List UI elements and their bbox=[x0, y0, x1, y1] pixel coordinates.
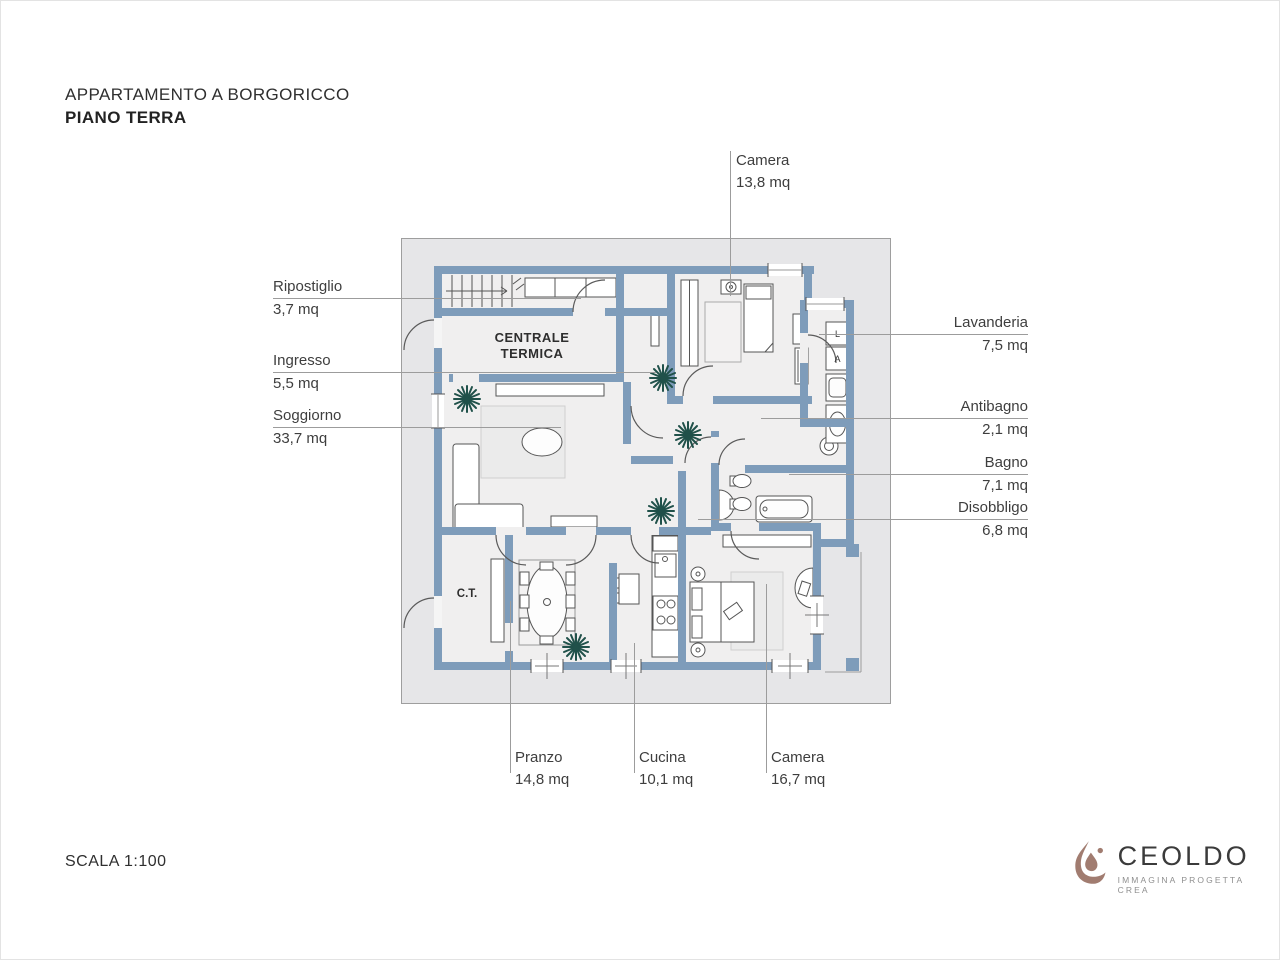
logo-tagline: IMMAGINA PROGETTA CREA bbox=[1118, 875, 1279, 895]
ct-room-label: C.T. bbox=[457, 588, 477, 600]
room-label-cucina: Cucina 10,1 mq bbox=[639, 749, 749, 788]
room-name: Bagno bbox=[789, 454, 1028, 475]
company-logo: CEOLDO IMMAGINA PROGETTA CREA bbox=[1067, 837, 1279, 895]
room-label-ingresso: Ingresso 5,5 mq bbox=[273, 352, 656, 392]
room-label-soggiorno: Soggiorno 33,7 mq bbox=[273, 407, 561, 447]
room-area: 14,8 mq bbox=[515, 769, 625, 788]
porch-pillar bbox=[846, 658, 859, 671]
room-name: Ripostiglio bbox=[273, 278, 581, 299]
room-name: Soggiorno bbox=[273, 407, 561, 428]
page-title: APPARTAMENTO A BORGORICCO bbox=[65, 85, 350, 105]
logo-brand: CEOLDO bbox=[1118, 843, 1279, 870]
room-area: 7,1 mq bbox=[789, 475, 1028, 494]
page-subtitle: PIANO TERRA bbox=[65, 108, 350, 128]
flame-logo-icon bbox=[1067, 837, 1111, 889]
room-label-bagno: Bagno 7,1 mq bbox=[789, 454, 1028, 494]
room-area: 2,1 mq bbox=[761, 419, 1028, 438]
room-area: 10,1 mq bbox=[639, 769, 749, 788]
room-name: Camera bbox=[736, 152, 856, 172]
leader-line-cucina bbox=[634, 643, 635, 773]
room-label-camera-bottom: Camera 16,7 mq bbox=[771, 749, 881, 788]
room-name: Cucina bbox=[639, 749, 749, 769]
floor-plan-page: APPARTAMENTO A BORGORICCO PIANO TERRA bbox=[0, 0, 1280, 960]
title-block: APPARTAMENTO A BORGORICCO PIANO TERRA bbox=[65, 85, 350, 128]
logo-text: CEOLDO IMMAGINA PROGETTA CREA bbox=[1118, 837, 1279, 895]
room-name: Ingresso bbox=[273, 352, 656, 373]
leader-line-camera-top bbox=[730, 151, 731, 296]
room-name: Disobbligo bbox=[698, 499, 1028, 520]
room-area: 3,7 mq bbox=[273, 299, 581, 318]
room-name: Pranzo bbox=[515, 749, 625, 769]
centrale-termica-label: CENTRALE bbox=[495, 330, 570, 345]
room-area: 5,5 mq bbox=[273, 373, 656, 392]
room-area: 33,7 mq bbox=[273, 428, 561, 447]
room-area: 7,5 mq bbox=[819, 335, 1028, 354]
room-name: Lavanderia bbox=[819, 314, 1028, 335]
dryer-letter: A bbox=[834, 354, 840, 364]
room-label-pranzo: Pranzo 14,8 mq bbox=[515, 749, 625, 788]
room-name: Camera bbox=[771, 749, 881, 769]
room-label-lavanderia: Lavanderia 7,5 mq bbox=[819, 314, 1028, 354]
room-label-antibagno: Antibagno 2,1 mq bbox=[761, 398, 1028, 438]
room-label-disobbligo: Disobbligo 6,8 mq bbox=[698, 499, 1028, 539]
room-label-camera-top: Camera 13,8 mq bbox=[736, 152, 856, 191]
leader-line-pranzo bbox=[510, 601, 511, 773]
room-area: 6,8 mq bbox=[698, 520, 1028, 539]
scale-note: SCALA 1:100 bbox=[65, 853, 167, 871]
room-area: 16,7 mq bbox=[771, 769, 881, 788]
room-area: 13,8 mq bbox=[736, 172, 856, 191]
room-name: Antibagno bbox=[761, 398, 1028, 419]
room-label-ripostiglio: Ripostiglio 3,7 mq bbox=[273, 278, 581, 318]
leader-line-camera-bottom bbox=[766, 584, 767, 773]
